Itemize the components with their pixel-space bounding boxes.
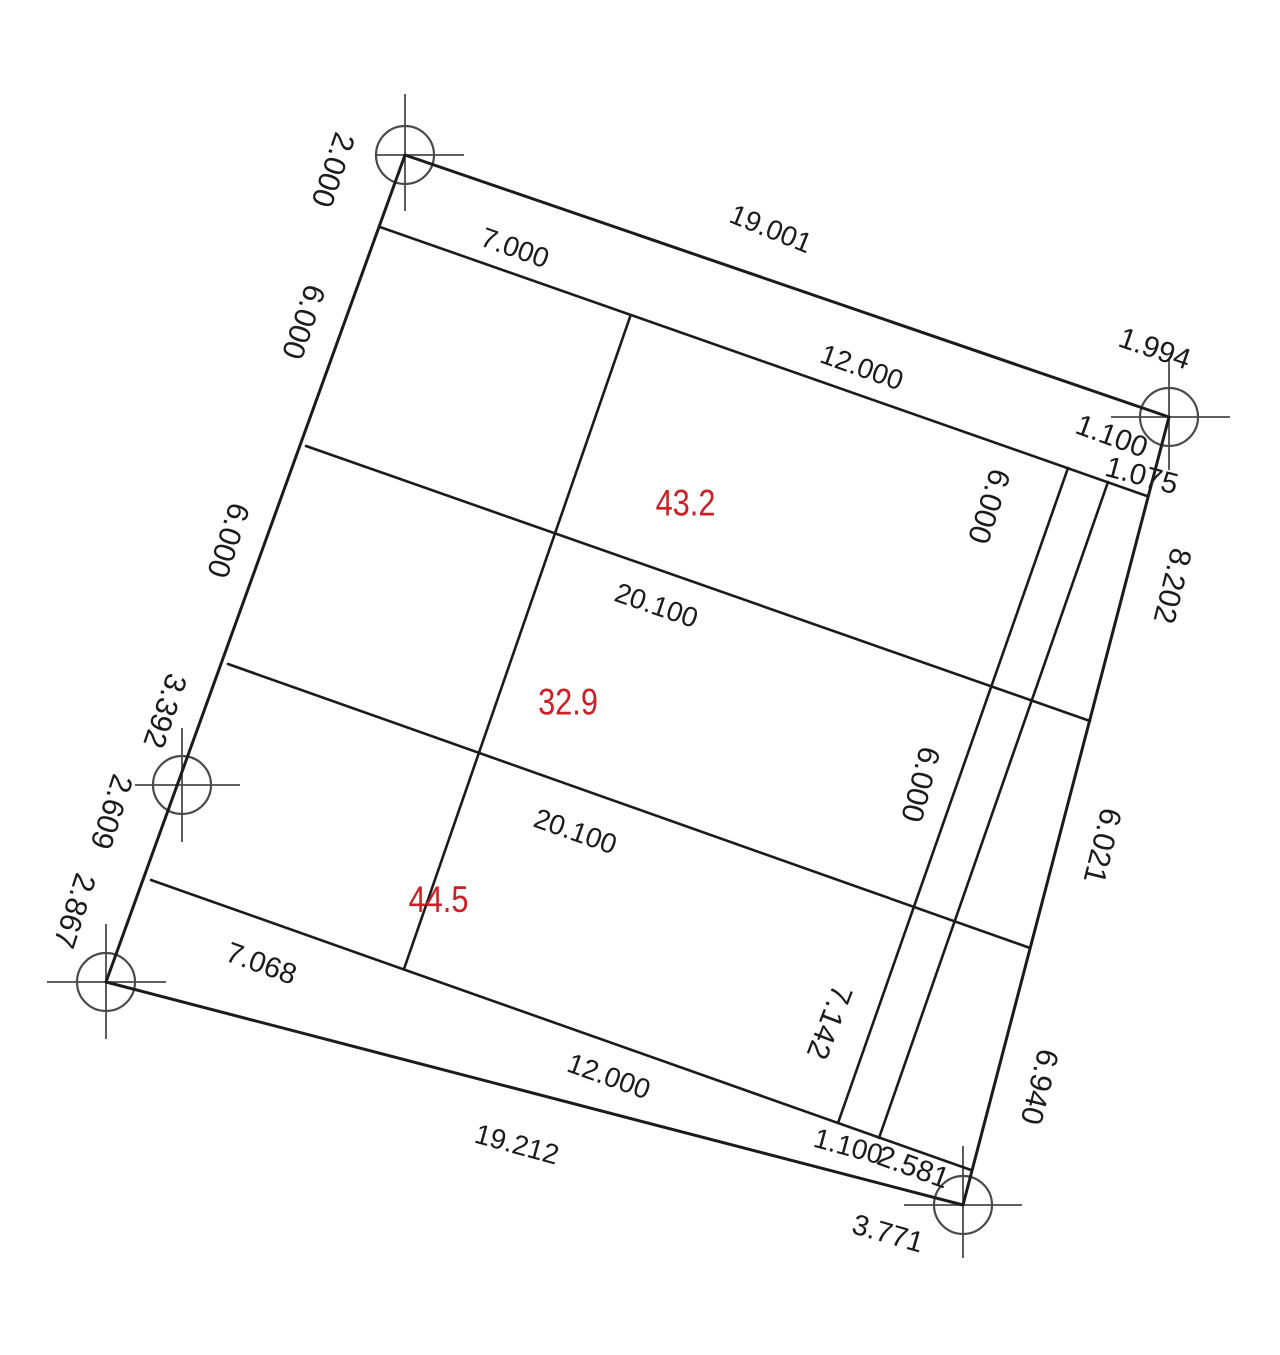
svg-text:43.2: 43.2 [656,483,716,525]
svg-text:32.9: 32.9 [538,682,598,724]
svg-text:44.5: 44.5 [409,879,469,921]
